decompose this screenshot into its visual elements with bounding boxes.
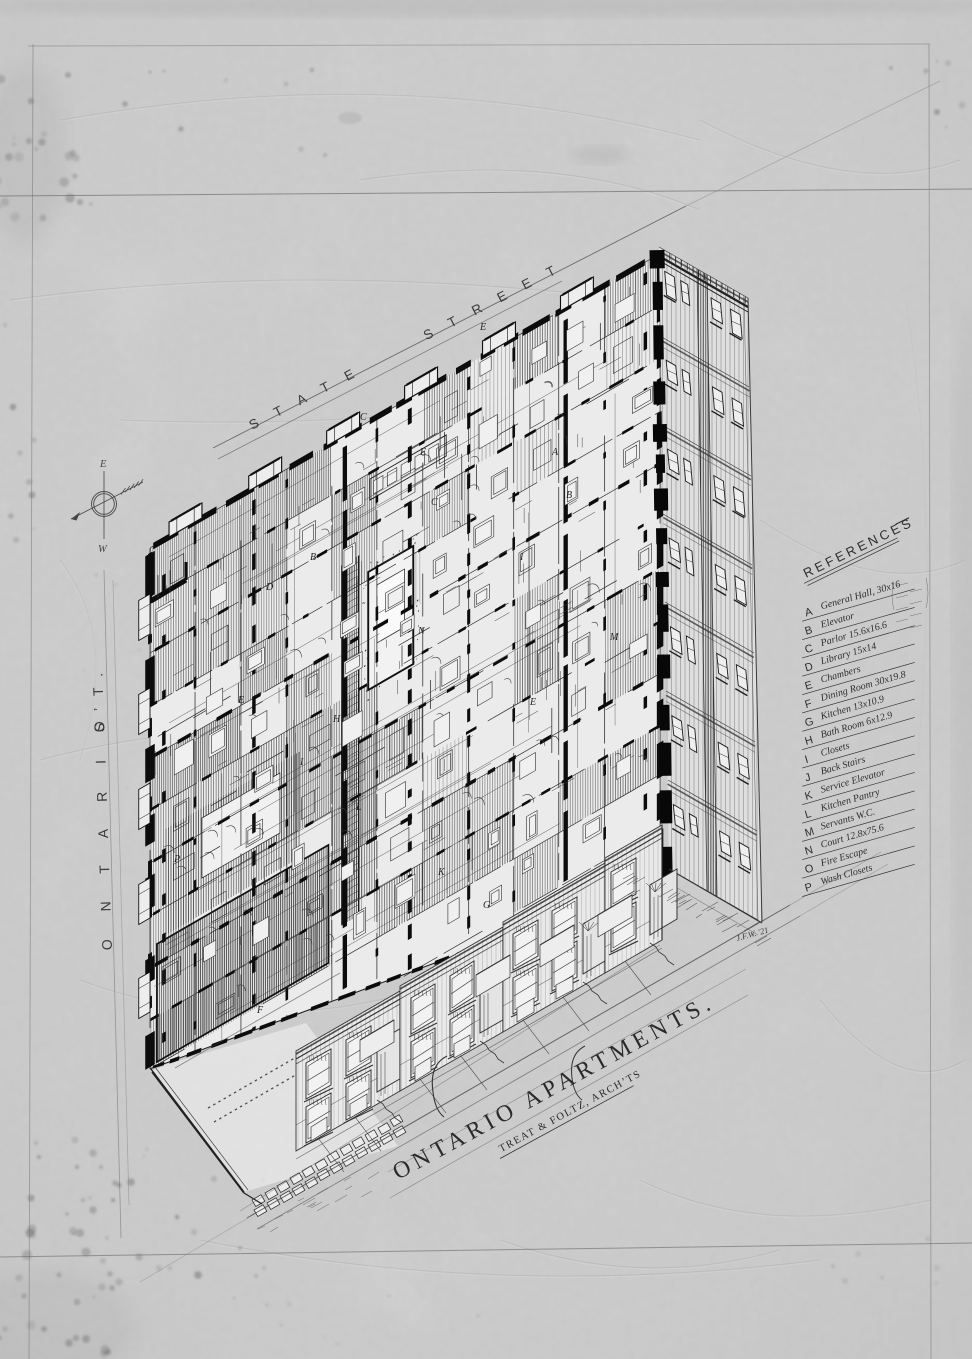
svg-text:G: G <box>483 900 490 911</box>
svg-text:E: E <box>479 322 486 333</box>
svg-text:H: H <box>332 714 341 725</box>
svg-text:A: A <box>551 447 559 458</box>
svg-text:B: B <box>310 552 316 563</box>
svg-text:M: M <box>609 632 619 643</box>
svg-text:E: E <box>529 697 536 708</box>
svg-text:D: D <box>265 582 274 593</box>
svg-text:I: I <box>519 552 524 563</box>
svg-text:K: K <box>437 867 446 878</box>
svg-text:C: C <box>360 412 367 423</box>
svg-text:L: L <box>355 802 362 813</box>
svg-text:B: B <box>566 490 572 501</box>
svg-text:F: F <box>256 1005 264 1016</box>
svg-text:P: P <box>173 854 180 865</box>
svg-text:S’T.: S’T. <box>89 661 107 733</box>
svg-text:N: N <box>417 626 426 637</box>
svg-text:E: E <box>419 447 426 458</box>
svg-text:W: W <box>98 544 108 555</box>
svg-text:C: C <box>431 497 438 508</box>
svg-text:E: E <box>99 459 107 470</box>
svg-text:E: E <box>237 695 244 706</box>
svg-text:I: I <box>299 757 304 768</box>
